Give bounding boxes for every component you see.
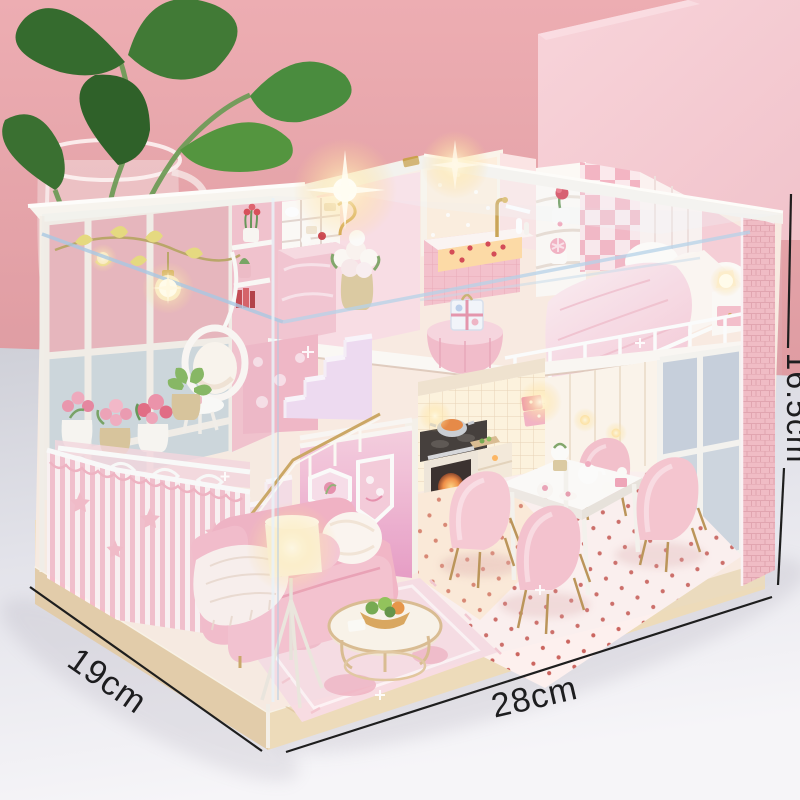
product-photo: 19cm 28cm 16.5cm <box>0 0 800 800</box>
dimension-label-height: 16.5cm <box>780 353 800 464</box>
